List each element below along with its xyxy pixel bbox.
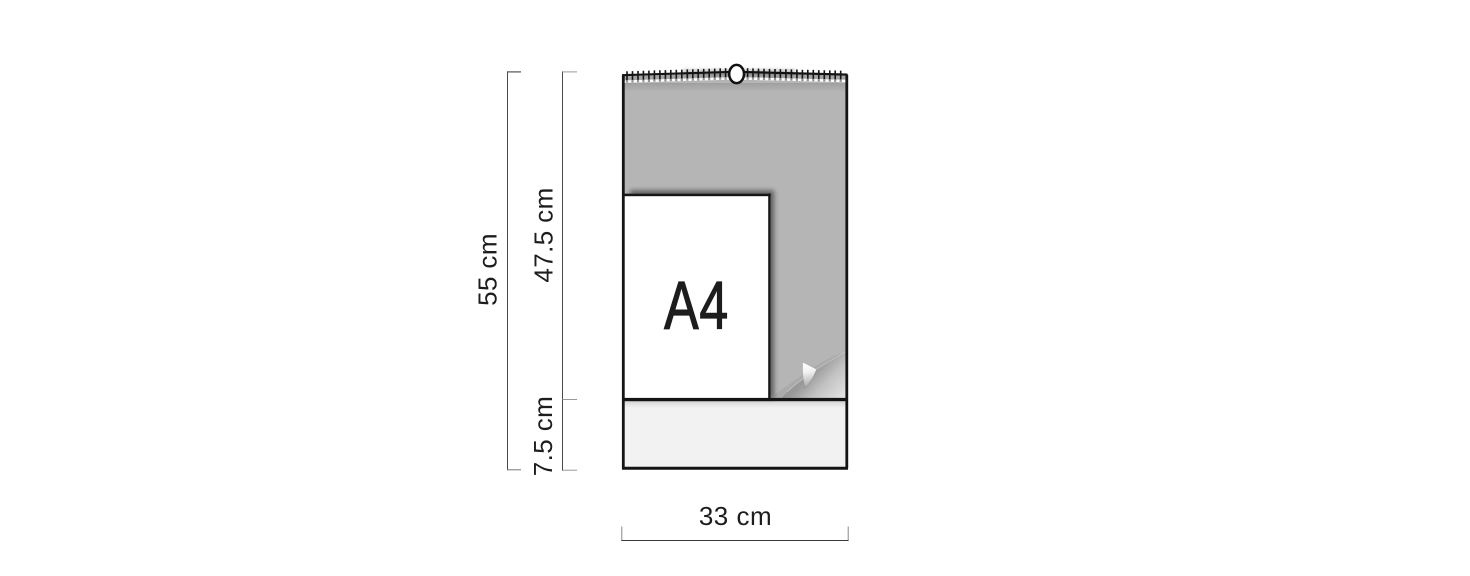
svg-text:47.5 cm: 47.5 cm <box>529 187 559 282</box>
svg-text:7.5 cm: 7.5 cm <box>528 396 558 476</box>
svg-text:55 cm: 55 cm <box>473 233 503 306</box>
svg-text:A4: A4 <box>664 267 729 344</box>
svg-text:33 cm: 33 cm <box>699 501 772 531</box>
